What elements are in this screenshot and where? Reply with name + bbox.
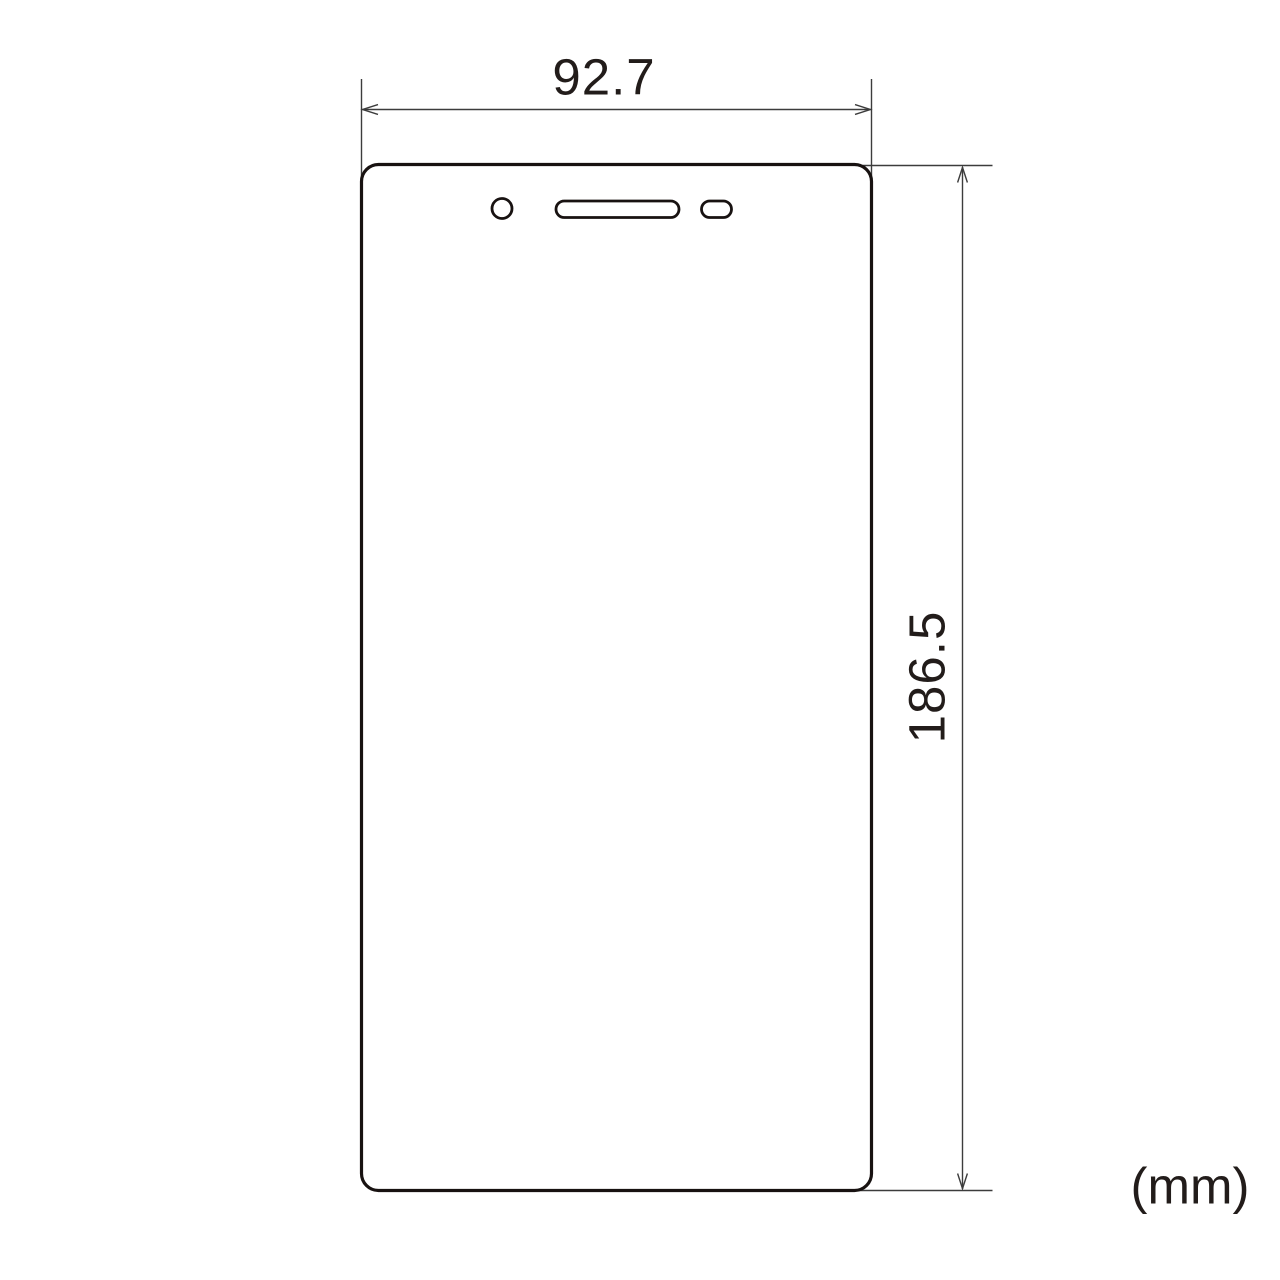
drawing-canvas: [0, 0, 1280, 1280]
speaker-slot-cutout: [556, 201, 679, 218]
sensor-pill-cutout: [702, 201, 732, 218]
unit-label: (mm): [1131, 1161, 1250, 1212]
height-dimension-label: 186.5: [902, 611, 953, 744]
width-dimension-label: 92.7: [552, 52, 655, 103]
camera-hole-cutout: [492, 199, 512, 219]
protector-shape-group: [362, 165, 872, 1191]
protector-outline: [362, 165, 872, 1191]
screen-protector-dimension-diagram: 92.7 186.5 (mm): [0, 0, 1280, 1280]
